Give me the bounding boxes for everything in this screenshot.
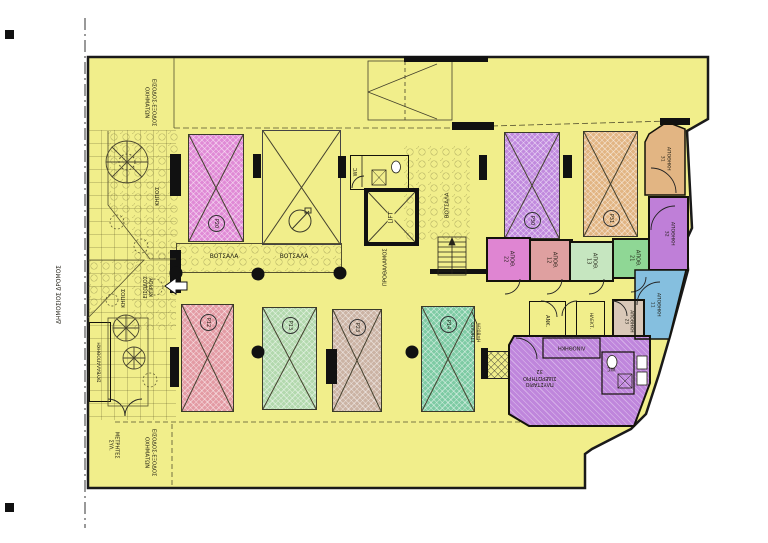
storage-room-31: ΑΠΟΘΗΚΗ31 [645, 122, 685, 195]
vestibule-label: ΠΡΟΘΑΛΑΜΟΣ [358, 235, 413, 300]
stall-number: P12 [200, 314, 217, 331]
storage-room-22: ΑΠΟΘ.22 [486, 237, 531, 282]
laundry-label: ΠΛΥΣΤΑΡΙΟΣΙΔΕΡΩΤΗΡΙΟ32 [516, 353, 564, 401]
stall-number: P23 [349, 319, 366, 336]
pebbles-label-1: ΒΟΤΣΑΛΑ [196, 250, 252, 263]
parking-stall-p13: P13 [262, 307, 317, 410]
storage-room-12: ΑΠΟΘ.12 [529, 239, 573, 282]
parking-stall-p31: P31 [583, 131, 638, 237]
survey-mark-top [5, 30, 14, 39]
garden-label-upper: ΚΗΠΟΣ [138, 176, 178, 216]
stall-number: P31 [603, 210, 620, 227]
parking-stall-visitor [262, 130, 341, 245]
storage-room-13: ΑΠΟΘ.13 [569, 241, 614, 282]
vehicle-ramp [368, 61, 452, 120]
pebbles-label-3: ΒΟΤΣΑΛΑ [425, 183, 470, 228]
stall-number: P30 [524, 212, 541, 229]
machine-room: ΑΝΚ. [529, 301, 566, 342]
floor-plan-canvas: P20 P30 P31 P12 P13 P23 P14 ΑΠΟΘ.22 ΑΠΟΘ… [0, 0, 768, 543]
vehicle-access-label-top: ΕΙΣΟΔΟΣ-ΕΞΟΔΟΣΟΧΗΜΑΤΩΝ [115, 68, 185, 138]
laundry-wc-label: WC [602, 362, 620, 375]
stall-cross [263, 131, 340, 244]
linen-label: ΛΙΝΟΘΗΚΗ [546, 341, 598, 354]
meters-label: ΜΕΤΡΗΤΕΣΣΥΛ. [88, 420, 138, 470]
pebbles-label-2: ΒΟΤΣΑΛΑ [266, 250, 322, 263]
core-wc-label: WC [348, 158, 364, 186]
stall-number: P13 [282, 317, 299, 334]
ramp-top-wall [404, 56, 488, 62]
public-road-label: ΔΗΜΟΣΙΟΣ ΔΡΟΜΟΣ [25, 250, 95, 340]
light-well [486, 351, 510, 379]
parking-stall-p30: P30 [504, 132, 560, 239]
garden-label-lower: ΚΗΠΟΣ [104, 278, 144, 318]
parking-stall-p12: P12 [181, 304, 234, 412]
staircase [438, 237, 466, 275]
garbage-store-label: ΣΚΥΒΑΛΑΠΟΘΗΚΗ [98, 342, 103, 382]
parking-stall-p23: P23 [332, 309, 382, 412]
survey-mark-bottom [5, 503, 14, 512]
storage-room-32: ΑΠΟΘΗΚΗ32 [648, 196, 689, 271]
lift-label: LIFT [388, 210, 395, 224]
electrical-room: ΗΛΕΚΤ. [576, 301, 605, 341]
parking-stall-p20: P20 [188, 134, 244, 242]
parapet-note: ΣΤΗΘΑΙΟH=80cm [455, 310, 500, 355]
stall-number: P20 [208, 215, 225, 232]
